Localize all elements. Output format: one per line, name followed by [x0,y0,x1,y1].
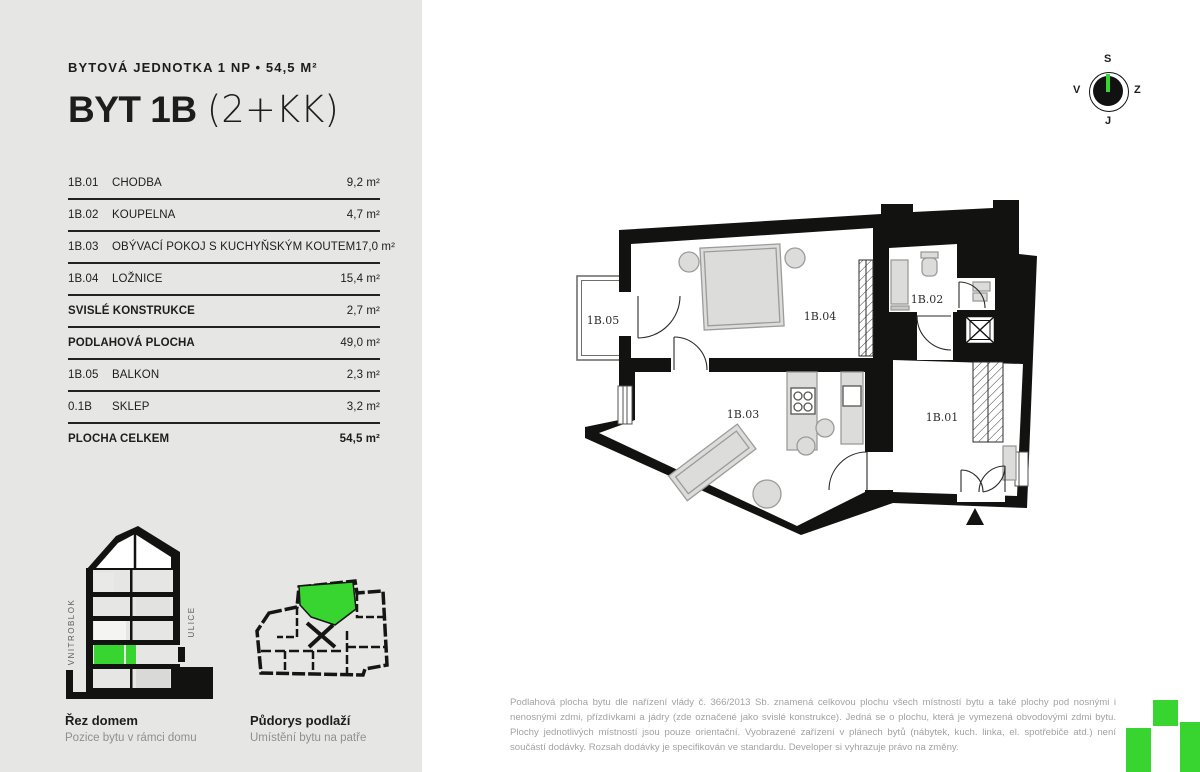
room-label-bathroom: 1B.02 [911,293,944,306]
room-name: CHODBA [112,177,162,189]
shelf [973,282,990,291]
developer-logo [1126,700,1200,772]
room-code: 1B.04 [68,273,112,285]
coffee-table [753,480,781,508]
table-row: 1B.03 OBÝVACÍ POKOJ S KUCHYŇSKÝM KOUTEM … [68,232,380,264]
washbasin [891,306,909,310]
room-name: KOUPELNA [112,209,175,221]
floor-overview-caption: Půdorys podlaží Umístění bytu na patře [250,713,440,744]
room-label-balcony: 1B.05 [587,314,620,327]
room-area: 2,7 m² [347,305,380,317]
disclaimer-text: Podlahová plocha bytu dle nařízení vlády… [510,696,1116,755]
room-label-bedroom: 1B.04 [804,310,837,323]
axis-label-street: ULICE [187,606,196,637]
entrance-zone [957,488,1005,502]
compass-north-label: S [1104,53,1111,65]
unit-layout-type: (2+KK) [207,88,339,131]
logo-block [1126,728,1151,772]
room-area: 15,4 m² [340,273,380,285]
room-label-hall: 1B.01 [926,411,959,424]
room-code: 1B.03 [68,241,112,253]
bathroom-door-zone [917,312,953,360]
room-area: 9,2 m² [347,177,380,189]
room-area: 4,7 m² [347,209,380,221]
compass-left-label: V [1073,84,1080,96]
table-row-summary: PODLAHOVÁ PLOCHA 49,0 m² [68,328,380,360]
shaft [965,316,995,344]
room-name: SVISLÉ KONSTRUKCE [68,305,195,317]
floor-overview-highlighted-unit [299,582,356,625]
table-row-summary: SVISLÉ KONSTRUKCE 2,7 m² [68,296,380,328]
room-name: SKLEP [112,401,150,413]
floor-plan: 1B.05 1B.04 1B.02 1B.03 1B.01 [575,200,1045,540]
nightstand [679,252,699,272]
logo-block [1153,700,1178,726]
toilet-bowl [922,258,937,276]
bedroom-door-zone [671,358,709,372]
room-name: PODLAHOVÁ PLOCHA [68,337,195,349]
fridge [843,386,861,406]
compass-right-label: Z [1134,84,1141,96]
balcony-door-zone [618,292,631,336]
toilet [921,252,938,258]
room-code: 1B.02 [68,209,112,221]
table-row-total: PLOCHA CELKEM 54,5 m² [68,424,380,454]
room-area: 49,0 m² [340,337,380,349]
room-name: PLOCHA CELKEM [68,433,169,445]
table-row: 0.1B SKLEP 3,2 m² [68,392,380,424]
section-highlighted-unit [94,645,136,664]
compass-south-label: J [1105,115,1111,127]
axis-label-courtyard: VNITROBLOK [67,599,76,666]
building-section-figure: VNITROBLOK ULICE [58,522,238,712]
logo-block [1180,722,1200,772]
compass: S V Z J [1073,53,1143,129]
room-name: OBÝVACÍ POKOJ S KUCHYŇSKÝM KOUTEM [112,241,355,253]
compass-needle [1106,74,1110,92]
nightstand [785,248,805,268]
table-row: 1B.02 KOUPELNA 4,7 m² [68,200,380,232]
room-code: 1B.01 [68,177,112,189]
stool [797,437,815,455]
room-area: 2,3 m² [347,369,380,381]
room-area: 3,2 m² [347,401,380,413]
entrance-arrow [966,508,984,525]
table-row: 1B.01 CHODBA 9,2 m² [68,168,380,200]
room-label-living: 1B.03 [727,408,760,421]
room-code: 0.1B [68,401,112,413]
room-area-table: 1B.01 CHODBA 9,2 m² 1B.02 KOUPELNA 4,7 m… [68,168,380,454]
section-title: Řez domem [65,713,255,728]
table-row: 1B.04 LOŽNICE 15,4 m² [68,264,380,296]
room-area: 17,0 m² [355,241,395,253]
floor-overview-figure [247,573,392,698]
floor-overview-title: Půdorys podlaží [250,713,440,728]
bed [700,244,784,330]
room-code: 1B.05 [68,369,112,381]
apartment-sheet: BYTOVÁ JEDNOTKA 1 NP • 54,5 M² BYT 1B (2… [0,0,1200,772]
room-name: LOŽNICE [112,273,163,285]
unit-subtitle: BYTOVÁ JEDNOTKA 1 NP • 54,5 M² [68,60,408,75]
stool [816,419,834,437]
bathtub [891,260,908,304]
shelf [973,293,987,301]
floor-overview-subtitle: Umístění bytu na patře [250,732,440,744]
living-hall-door-zone [861,452,897,490]
header: BYTOVÁ JEDNOTKA 1 NP • 54,5 M² BYT 1B (2… [68,60,408,128]
section-subtitle: Pozice bytu v rámci domu [65,732,255,744]
page-title: BYT 1B (2+KK) [68,91,408,128]
room-name: BALKON [112,369,159,381]
kitchen-tall-cabinet [841,372,863,444]
unit-name: BYT 1B [68,89,197,130]
table-row: 1B.05 BALKON 2,3 m² [68,360,380,392]
section-caption: Řez domem Pozice bytu v rámci domu [65,713,255,744]
room-area: 54,5 m² [340,433,380,445]
